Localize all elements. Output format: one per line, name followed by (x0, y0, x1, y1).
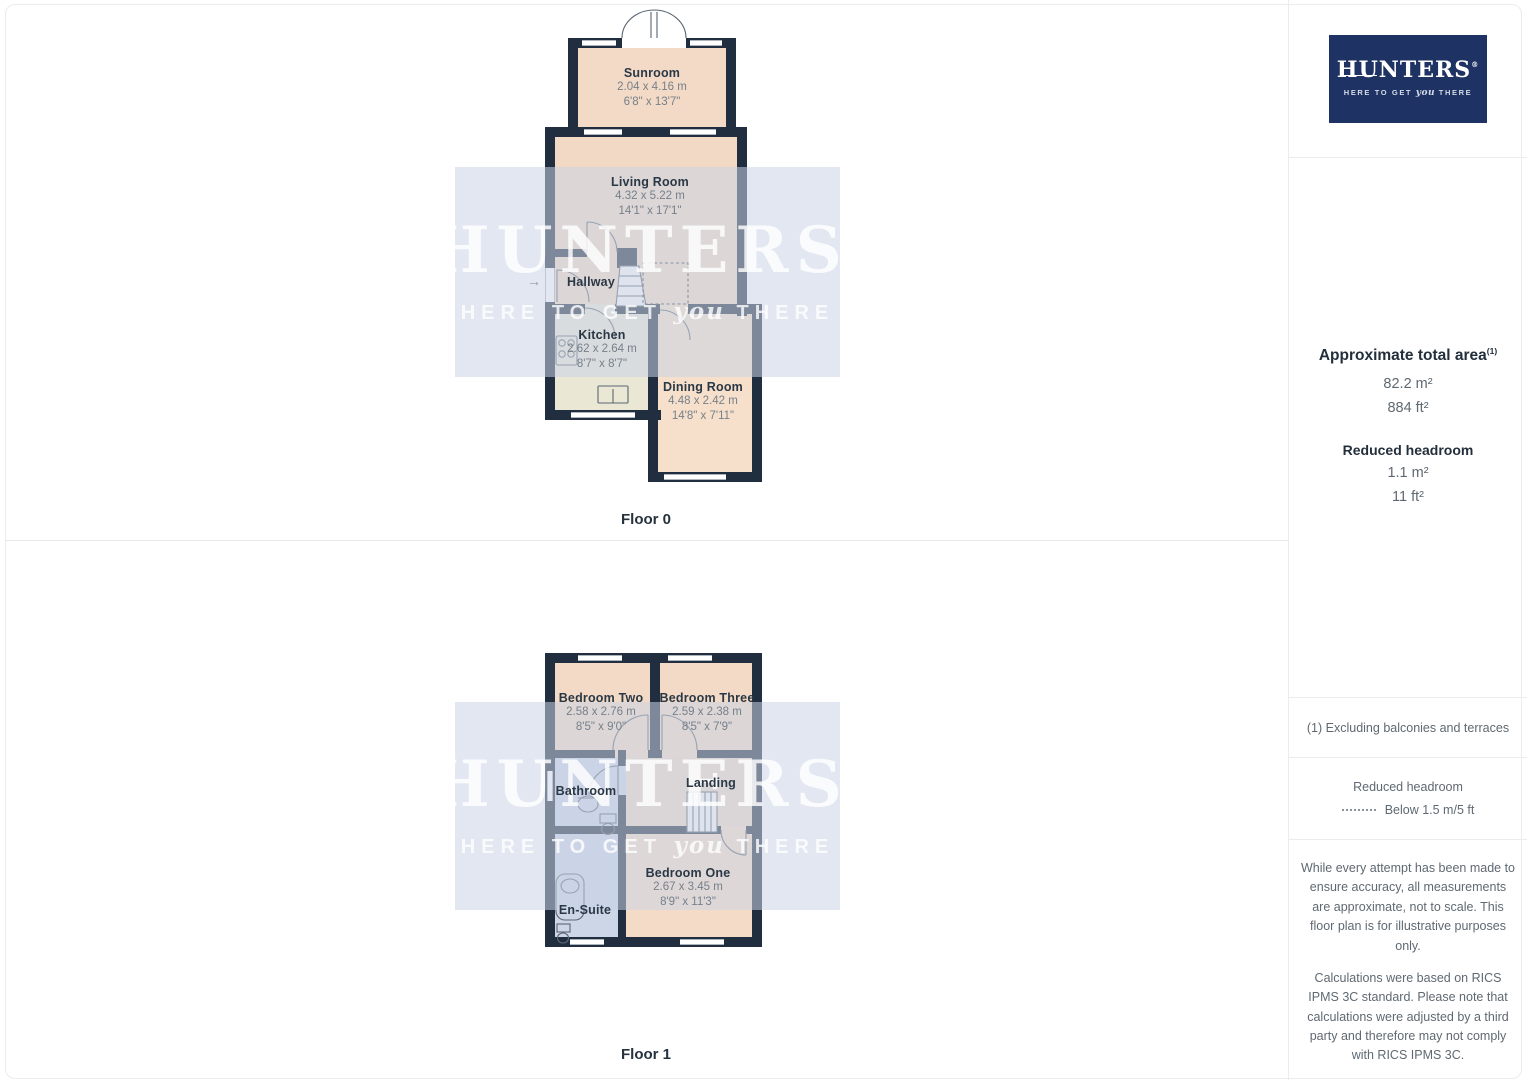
disclaimer-paragraph-1: While every attempt has been made to ens… (1301, 859, 1515, 956)
legend-title: Reduced headroom (1353, 780, 1463, 794)
logo-section: HUNTERS® HERE TO GET you THERE (1289, 0, 1527, 158)
room-label-dining-room: Dining Room 4.48 x 2.42 m 14'8" x 7'11" (633, 380, 773, 424)
room-label-bedroom-one: Bedroom One 2.67 x 3.45 m 8'9" x 11'3" (618, 866, 758, 910)
window (668, 655, 712, 661)
floorplan-canvas: HUNTERS® HERE TO GET you THERE HUNTERS® … (0, 0, 1288, 1080)
reduced-headroom-title: Reduced headroom (1343, 442, 1474, 458)
wall (568, 38, 578, 137)
room-label-landing: Landing (641, 776, 781, 790)
logo-title: HUNTERS® (1337, 59, 1479, 81)
reduced-headroom-ft2: 11 ft² (1392, 486, 1424, 509)
legend-row: Below 1.5 m/5 ft (1342, 803, 1475, 817)
window (670, 129, 716, 135)
window (584, 129, 622, 135)
sunroom-door-opening (622, 38, 686, 48)
floorplan-page: HUNTERS® HERE TO GET you THERE HUNTERS® … (0, 0, 1527, 1080)
door-leaf (651, 12, 657, 38)
reduced-headroom-dash (1342, 809, 1376, 811)
window (582, 40, 616, 46)
section-divider (6, 540, 1288, 541)
room-label-kitchen: Kitchen 2.62 x 2.64 m 8'7" x 8'7" (532, 328, 672, 372)
hunters-logo: HUNTERS® HERE TO GET you THERE (1329, 35, 1487, 123)
area-summary-section: Approximate total area(1) 82.2 m² 884 ft… (1289, 158, 1527, 698)
footnote-section: (1) Excluding balconies and terraces (1289, 698, 1527, 758)
disclaimer-paragraph-2: Calculations were based on RICS IPMS 3C … (1301, 969, 1515, 1066)
wall (726, 38, 736, 137)
logo-tagline: HERE TO GET you THERE (1344, 88, 1472, 98)
window (578, 655, 622, 661)
window (571, 412, 635, 418)
room-label-sunroom: Sunroom 2.04 x 4.16 m 6'8" x 13'7" (582, 66, 722, 110)
room-label-hallway: Hallway (521, 275, 661, 289)
info-sidebar: HUNTERS® HERE TO GET you THERE Approxima… (1288, 0, 1527, 1080)
logo-crossbar (1341, 75, 1377, 76)
legend-item-label: Below 1.5 m/5 ft (1385, 803, 1475, 817)
disclaimer-section: While every attempt has been made to ens… (1289, 840, 1527, 1080)
total-area-ft2: 884 ft² (1387, 397, 1428, 420)
watermark-title: HUNTERS® (429, 219, 866, 283)
room-label-bedroom-three: Bedroom Three 2.59 x 2.38 m 8'5" x 7'9" (632, 691, 782, 735)
total-area-title: Approximate total area(1) (1319, 346, 1497, 365)
floor1-label: Floor 1 (546, 1046, 746, 1063)
door-arc (654, 10, 686, 38)
window (690, 40, 722, 46)
legend-section: Reduced headroom Below 1.5 m/5 ft (1289, 758, 1527, 840)
watermark-tagline: HERE TO GET you THERE (461, 832, 835, 859)
total-area-m2: 82.2 m² (1383, 373, 1432, 396)
room-label-bathroom: Bathroom (516, 784, 656, 798)
reduced-headroom-m2: 1.1 m² (1387, 462, 1428, 485)
floor0-label: Floor 0 (546, 511, 746, 528)
window (664, 474, 726, 480)
window (680, 939, 724, 945)
window (570, 939, 604, 945)
footnote-text: (1) Excluding balconies and terraces (1307, 721, 1509, 735)
room-label-living-room: Living Room 4.32 x 5.22 m 14'1" x 17'1" (580, 175, 720, 219)
wall (545, 127, 747, 137)
door-arc (622, 10, 654, 38)
watermark-tagline: HERE TO GET you THERE (461, 298, 835, 325)
